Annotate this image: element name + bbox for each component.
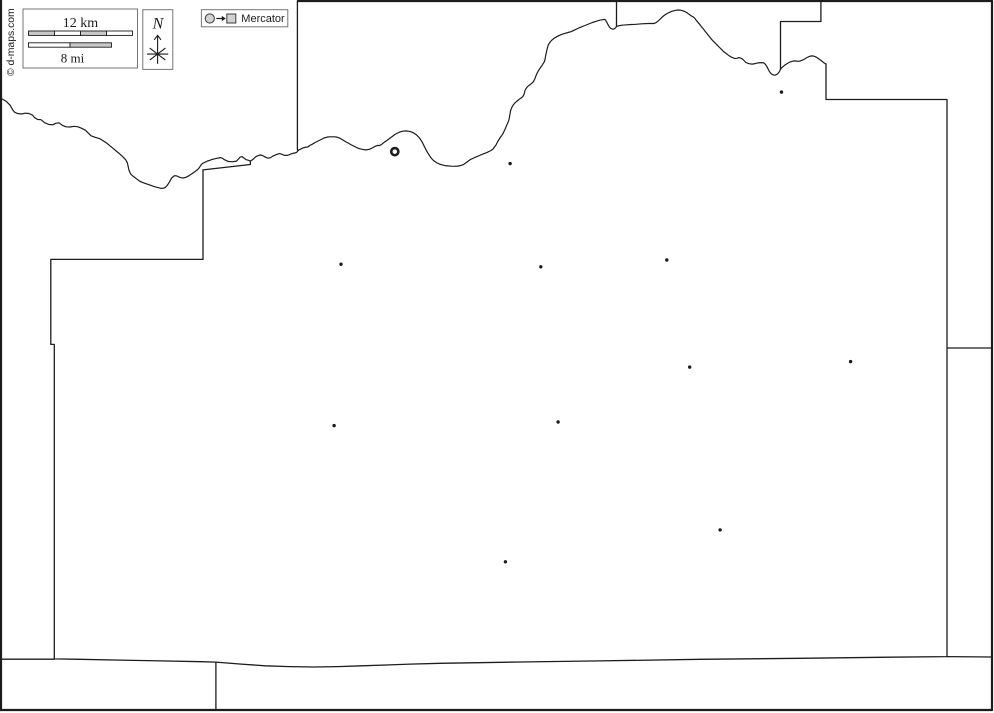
- svg-text:N: N: [152, 16, 165, 33]
- svg-text:8 mi: 8 mi: [61, 51, 85, 66]
- svg-text:Mercator: Mercator: [241, 13, 285, 25]
- svg-text:12 km: 12 km: [63, 16, 99, 31]
- svg-text:© d-maps.com: © d-maps.com: [6, 8, 17, 76]
